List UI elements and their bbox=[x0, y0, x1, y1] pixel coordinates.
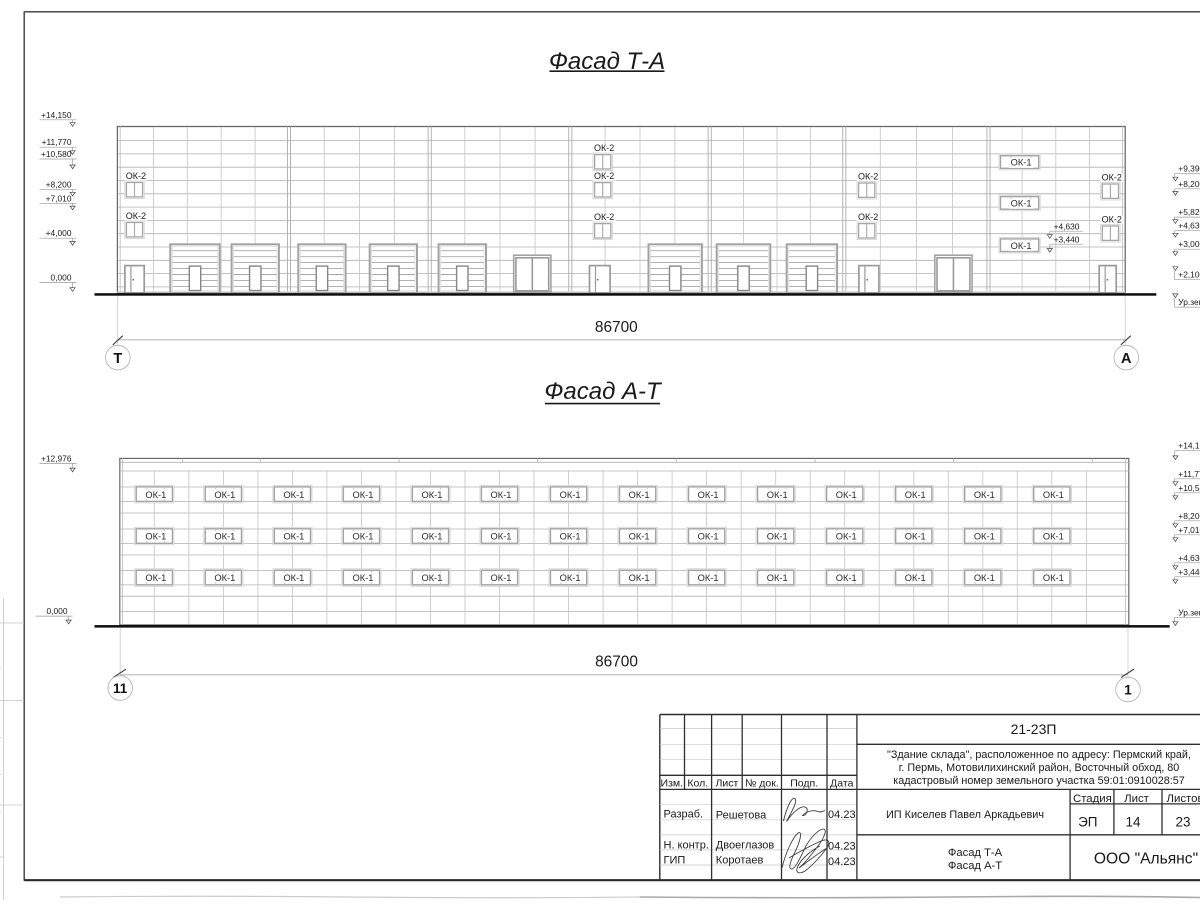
svg-text:Кол.: Кол. bbox=[687, 777, 708, 789]
svg-text:ОК-1: ОК-1 bbox=[767, 573, 788, 583]
svg-text:ОК-1: ОК-1 bbox=[491, 532, 512, 542]
svg-text:04.23: 04.23 bbox=[828, 856, 856, 868]
svg-text:+4,630: +4,630 bbox=[1178, 553, 1200, 563]
svg-text:ОК-1: ОК-1 bbox=[560, 490, 581, 500]
svg-text:Листов: Листов bbox=[1166, 793, 1200, 805]
svg-text:11: 11 bbox=[113, 681, 128, 696]
svg-text:ОК-1: ОК-1 bbox=[629, 573, 650, 583]
svg-text:04.23: 04.23 bbox=[828, 809, 856, 821]
svg-text:86700: 86700 bbox=[595, 319, 638, 336]
svg-text:Разраб.: Разраб. bbox=[664, 808, 704, 820]
svg-text:86700: 86700 bbox=[595, 654, 638, 671]
svg-text:+8,200: +8,200 bbox=[46, 179, 72, 189]
svg-text:Фасад А-Т: Фасад А-Т bbox=[544, 378, 663, 405]
svg-text:ОК-1: ОК-1 bbox=[698, 490, 719, 500]
svg-text:ОК-1: ОК-1 bbox=[1043, 490, 1064, 500]
svg-text:+14,150: +14,150 bbox=[1178, 441, 1200, 451]
svg-text:ОК-1: ОК-1 bbox=[214, 532, 235, 542]
svg-text:+5,820: +5,820 bbox=[1178, 207, 1200, 217]
svg-text:ОК-2: ОК-2 bbox=[126, 211, 146, 221]
svg-text:ОК-1: ОК-1 bbox=[767, 532, 788, 542]
svg-text:+3,440: +3,440 bbox=[1054, 234, 1080, 244]
svg-text:+11,770: +11,770 bbox=[1178, 469, 1200, 479]
svg-text:ОК-1: ОК-1 bbox=[283, 573, 304, 583]
svg-text:ОК-1: ОК-1 bbox=[974, 490, 995, 500]
svg-text:ОК-1: ОК-1 bbox=[698, 532, 719, 542]
svg-text:ОК-1: ОК-1 bbox=[214, 490, 235, 500]
svg-text:ОК-2: ОК-2 bbox=[594, 212, 614, 222]
svg-text:Коротаев: Коротаев bbox=[716, 855, 764, 867]
svg-text:ИП Киселев Павел Аркадьевич: ИП Киселев Павел Аркадьевич bbox=[886, 809, 1044, 821]
svg-text:ОК-1: ОК-1 bbox=[905, 573, 926, 583]
svg-text:+14,150: +14,150 bbox=[41, 110, 72, 120]
svg-text:+10,580: +10,580 bbox=[41, 149, 72, 159]
svg-text:ОК-1: ОК-1 bbox=[352, 490, 373, 500]
svg-text:ОК-1: ОК-1 bbox=[422, 532, 443, 542]
svg-text:+4,630: +4,630 bbox=[1178, 221, 1200, 231]
svg-text:ОК-1: ОК-1 bbox=[1043, 532, 1064, 542]
svg-text:0,000: 0,000 bbox=[47, 606, 68, 616]
svg-text:ОК-1: ОК-1 bbox=[629, 532, 650, 542]
svg-text:ОК-1: ОК-1 bbox=[560, 573, 581, 583]
svg-text:+7,010: +7,010 bbox=[46, 193, 72, 203]
svg-text:ОК-1: ОК-1 bbox=[352, 532, 373, 542]
svg-text:ОК-2: ОК-2 bbox=[858, 172, 878, 182]
svg-text:ОК-2: ОК-2 bbox=[858, 212, 878, 222]
svg-text:Решетова: Решетова bbox=[716, 810, 767, 822]
svg-text:Фасад Т-А: Фасад Т-А bbox=[948, 847, 1003, 859]
svg-text:ОК-1: ОК-1 bbox=[698, 573, 719, 583]
svg-text:ОК-1: ОК-1 bbox=[974, 573, 995, 583]
svg-text:Изм.: Изм. bbox=[661, 777, 684, 789]
svg-text:ОК-1: ОК-1 bbox=[905, 532, 926, 542]
svg-text:№ док.: № док. bbox=[745, 777, 779, 789]
svg-text:Лист: Лист bbox=[715, 777, 738, 789]
svg-text:Двоеглазов: Двоеглазов bbox=[716, 840, 775, 852]
svg-text:+7,010: +7,010 bbox=[1178, 525, 1200, 535]
svg-text:Ур.земли: Ур.земли bbox=[1178, 297, 1200, 307]
svg-text:+2,100: +2,100 bbox=[1178, 270, 1200, 280]
svg-text:ОК-1: ОК-1 bbox=[1043, 573, 1064, 583]
svg-text:г. Пермь, Мотовилихинский райо: г. Пермь, Мотовилихинский район, Восточн… bbox=[899, 762, 1180, 774]
svg-text:ОК-1: ОК-1 bbox=[905, 490, 926, 500]
svg-text:21-23П: 21-23П bbox=[1011, 721, 1057, 737]
svg-text:Дата: Дата bbox=[830, 777, 853, 789]
svg-text:1: 1 bbox=[1124, 682, 1132, 697]
svg-text:+8,200: +8,200 bbox=[1178, 511, 1200, 521]
svg-text:ОК-2: ОК-2 bbox=[594, 143, 614, 153]
svg-text:+3,000: +3,000 bbox=[1178, 239, 1200, 249]
svg-text:кадастровый номер земельного у: кадастровый номер земельного участка 59:… bbox=[893, 775, 1184, 787]
svg-text:+4,000: +4,000 bbox=[46, 228, 72, 238]
svg-text:ГИП: ГИП bbox=[664, 855, 686, 867]
svg-text:Н. контр.: Н. контр. bbox=[664, 840, 709, 852]
svg-text:ОК-1: ОК-1 bbox=[422, 573, 443, 583]
svg-text:Ур.земли: Ур.земли bbox=[1178, 607, 1200, 617]
svg-text:ОК-1: ОК-1 bbox=[422, 490, 443, 500]
svg-text:ОК-1: ОК-1 bbox=[214, 573, 235, 583]
svg-text:Подп.: Подп. bbox=[790, 777, 818, 789]
svg-text:ОК-1: ОК-1 bbox=[767, 490, 788, 500]
svg-text:ОК-1: ОК-1 bbox=[491, 490, 512, 500]
svg-text:04.23: 04.23 bbox=[828, 841, 856, 853]
svg-text:ОК-1: ОК-1 bbox=[491, 573, 512, 583]
svg-text:ОК-1: ОК-1 bbox=[836, 532, 857, 542]
svg-text:ОК-2: ОК-2 bbox=[594, 171, 614, 181]
svg-text:Стадия: Стадия bbox=[1073, 793, 1112, 805]
svg-text:Фасад А-Т: Фасад А-Т bbox=[948, 860, 1002, 872]
svg-text:14: 14 bbox=[1125, 814, 1141, 829]
svg-text:ОК-2: ОК-2 bbox=[126, 171, 146, 181]
svg-text:ОК-1: ОК-1 bbox=[145, 532, 166, 542]
svg-text:ОК-1: ОК-1 bbox=[1011, 158, 1032, 168]
svg-text:+3,440: +3,440 bbox=[1178, 567, 1200, 577]
svg-text:ОК-1: ОК-1 bbox=[352, 573, 373, 583]
svg-text:ОК-1: ОК-1 bbox=[560, 532, 581, 542]
svg-text:ОК-1: ОК-1 bbox=[283, 490, 304, 500]
svg-text:ОК-1: ОК-1 bbox=[629, 490, 650, 500]
svg-text:ОК-1: ОК-1 bbox=[836, 573, 857, 583]
svg-text:ОК-1: ОК-1 bbox=[283, 532, 304, 542]
svg-text:+9,390: +9,390 bbox=[1178, 164, 1200, 174]
svg-text:Лист: Лист bbox=[1124, 793, 1150, 805]
svg-text:А: А bbox=[1121, 351, 1132, 367]
svg-text:ОК-1: ОК-1 bbox=[1011, 241, 1032, 251]
svg-text:ОК-2: ОК-2 bbox=[1102, 173, 1122, 183]
svg-text:Т: Т bbox=[113, 351, 122, 367]
svg-text:0,000: 0,000 bbox=[51, 272, 72, 282]
svg-text:"Здание склада", расположенное: "Здание склада", расположенное по адресу… bbox=[887, 749, 1191, 761]
svg-text:ОК-1: ОК-1 bbox=[974, 532, 995, 542]
svg-text:ОК-1: ОК-1 bbox=[1011, 199, 1032, 209]
svg-text:+12,976: +12,976 bbox=[41, 453, 72, 463]
svg-text:23: 23 bbox=[1175, 814, 1190, 829]
svg-text:ОК-1: ОК-1 bbox=[145, 490, 166, 500]
svg-text:ОК-1: ОК-1 bbox=[145, 573, 166, 583]
svg-text:ЭП: ЭП bbox=[1078, 814, 1097, 829]
svg-text:ООО "Альянс": ООО "Альянс" bbox=[1094, 851, 1198, 868]
svg-text:ОК-1: ОК-1 bbox=[836, 490, 857, 500]
svg-text:+4,630: +4,630 bbox=[1054, 221, 1080, 231]
svg-text:ОК-2: ОК-2 bbox=[1102, 215, 1122, 225]
svg-text:+11,770: +11,770 bbox=[42, 137, 72, 147]
svg-text:+10,580: +10,580 bbox=[1178, 483, 1200, 493]
svg-text:+8,200: +8,200 bbox=[1178, 179, 1200, 189]
